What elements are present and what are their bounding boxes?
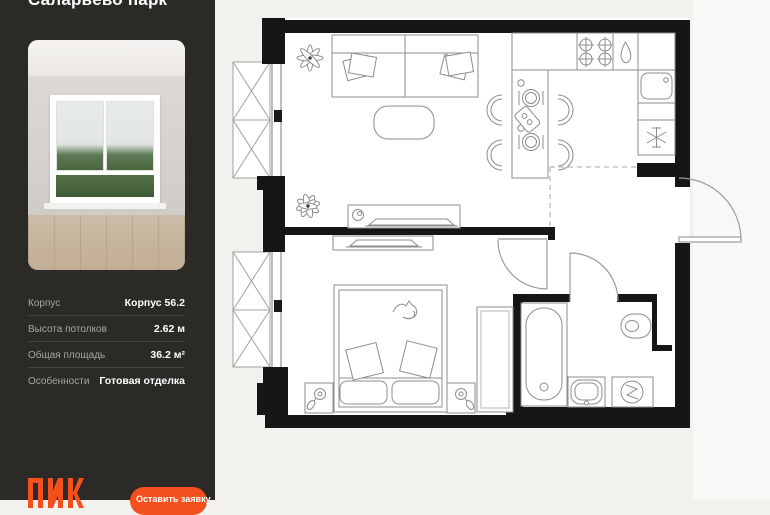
- coffee-table: [374, 106, 434, 139]
- spec-label: Корпус: [28, 298, 60, 309]
- balcony-living: [233, 62, 270, 178]
- photo-window-pane: [56, 101, 104, 171]
- pik-logo[interactable]: [28, 478, 84, 513]
- spec-row-korpus: Корпус Корпус 56.2: [28, 290, 185, 316]
- spec-label: Высота потолков: [28, 324, 107, 335]
- spec-value: Корпус 56.2: [125, 297, 185, 309]
- plan-background-right: [693, 0, 770, 500]
- spec-list: Корпус Корпус 56.2 Высота потолков 2.62 …: [28, 290, 185, 393]
- sidebar: Саларьево парк Корпус Корпус 56.2 Высота…: [0, 0, 215, 500]
- tv-console-living: [348, 205, 460, 228]
- project-title: Саларьево парк: [28, 0, 167, 10]
- photo-window: [50, 95, 160, 203]
- spec-value: 2.62 м: [154, 323, 185, 335]
- spec-value: 36.2 м²: [150, 349, 185, 361]
- dining-table: [512, 70, 548, 178]
- photo-window-pane: [106, 101, 154, 171]
- toilet: [621, 314, 651, 338]
- balcony-bedroom: [233, 252, 270, 367]
- plant-icon: [297, 45, 323, 71]
- photo-window-trees: [56, 175, 154, 197]
- photo-ceiling: [28, 40, 185, 76]
- washing-machine: [612, 377, 653, 407]
- photo-floor: [28, 215, 185, 270]
- bathtub: [521, 303, 567, 406]
- wardrobe: [477, 307, 513, 412]
- spec-value: Готовая отделка: [99, 375, 185, 387]
- spec-label: Общая площадь: [28, 350, 105, 361]
- bed: [334, 285, 447, 412]
- apartment-photo: [28, 40, 185, 270]
- spec-row-ceiling-height: Высота потолков 2.62 м: [28, 316, 185, 342]
- tv-console-bedroom: [333, 236, 433, 250]
- nightstand-right: [447, 383, 475, 413]
- sofa: [332, 35, 478, 97]
- spec-label: Особенности: [28, 376, 89, 387]
- photo-sill: [44, 203, 166, 209]
- vent-shaft: [657, 302, 675, 345]
- washbasin: [568, 377, 605, 407]
- spec-row-total-area: Общая площадь 36.2 м²: [28, 342, 185, 368]
- cta-button[interactable]: Оставить заявку: [130, 487, 207, 515]
- spec-row-features: Особенности Готовая отделка: [28, 368, 185, 393]
- nightstand-left: [305, 383, 333, 413]
